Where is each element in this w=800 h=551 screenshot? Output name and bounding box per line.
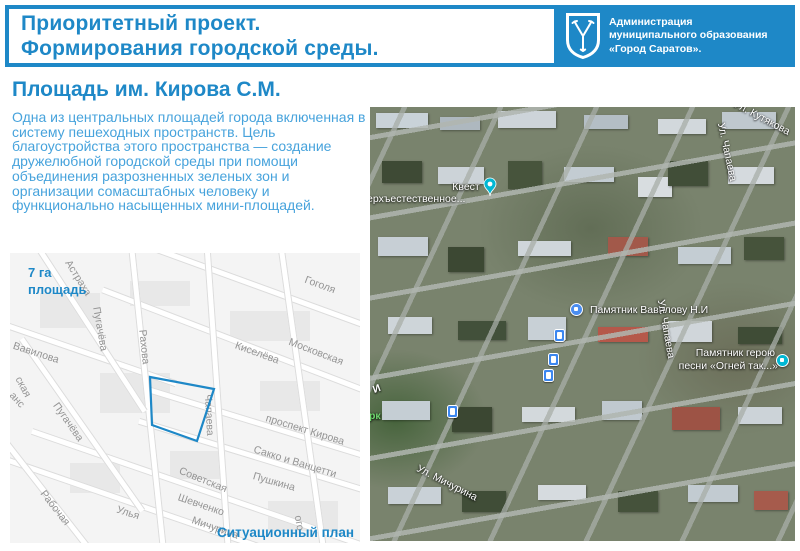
bus-stop-icon (447, 405, 458, 418)
org-name-line2: муниципального образования (609, 29, 768, 43)
quest-pin-icon (483, 177, 497, 197)
org-banner: Администрация муниципального образования… (554, 9, 791, 63)
header-title-line2: Формирования городской среды. (21, 37, 379, 62)
slide-page: Приоритетный проект. Формирования городс… (0, 0, 800, 551)
poi-label: Сверхъестественное... (370, 193, 465, 205)
situational-plan-map: Астраха Пугачёва Рахова Вавилова ская ан… (10, 253, 360, 543)
intro-paragraph: Одна из центральных площадей города вклю… (12, 110, 370, 213)
saratov-crest-icon (566, 13, 600, 59)
org-name-line1: Администрация (609, 16, 768, 30)
org-name: Администрация муниципального образования… (609, 16, 768, 57)
satellite-map: Квест Сверхъестественное... Памятник Вав… (370, 107, 795, 541)
bus-stop-icon (543, 369, 554, 382)
poi-label: песни «Огней так...» (679, 360, 778, 372)
header-banner: Приоритетный проект. Формирования городс… (5, 5, 795, 67)
header-title-line1: Приоритетный проект. (21, 12, 379, 37)
bus-stop-icon (554, 329, 565, 342)
bus-stop-icon (548, 353, 559, 366)
poi-label: Памятник Вавилову Н.И (590, 304, 708, 316)
plan-caption: Ситуационный план (217, 525, 354, 540)
monument-marker-icon (570, 303, 583, 316)
header-title: Приоритетный проект. Формирования городс… (21, 12, 379, 62)
hero-song-marker-icon (776, 354, 789, 367)
poi-label: Памятник герою (696, 347, 775, 359)
poi-label: Квест (452, 181, 479, 193)
section-title: Площадь им. Кирова С.М. (12, 78, 281, 102)
area-size-label: 7 га площадь (28, 265, 86, 299)
park-label-fragment: рк (370, 410, 381, 422)
org-name-line3: «Город Саратов». (609, 43, 768, 57)
